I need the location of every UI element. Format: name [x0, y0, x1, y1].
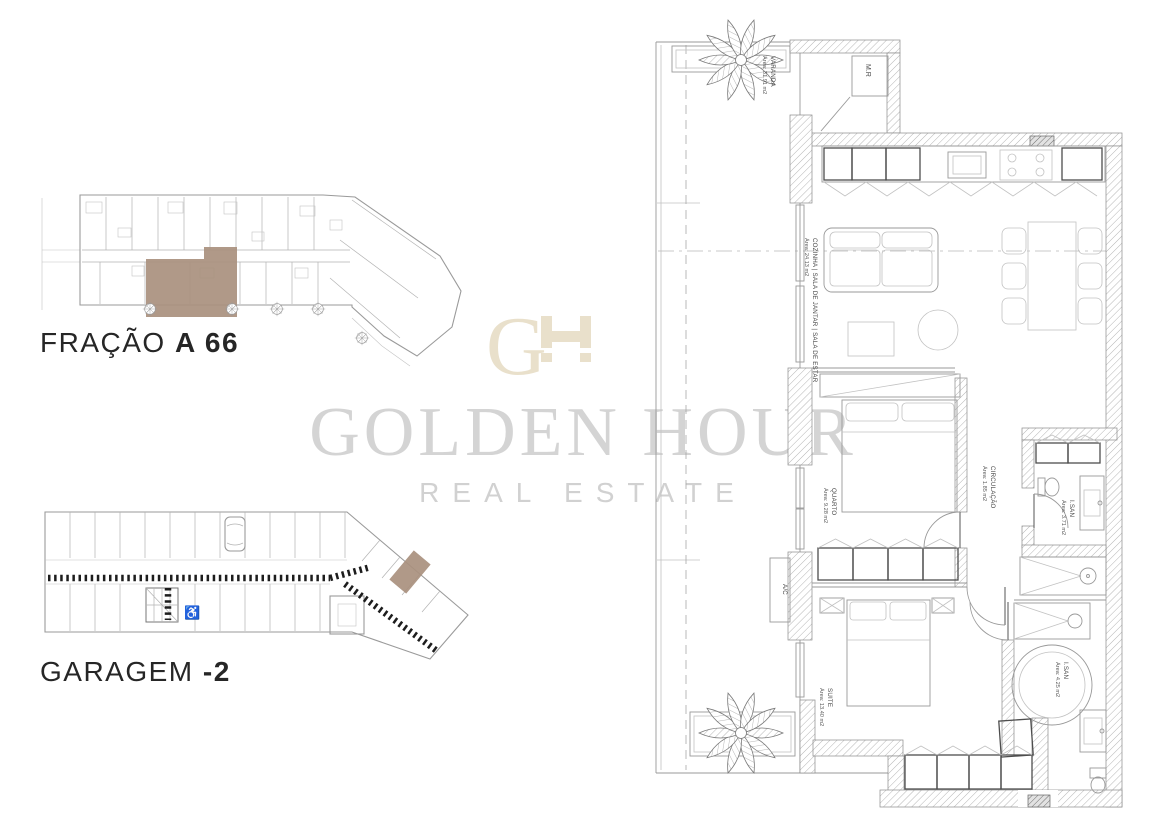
plant-icon: [311, 302, 325, 316]
svg-text:I.SAN: I.SAN: [1062, 662, 1069, 679]
bed-icon: [842, 400, 957, 512]
car-icon: [225, 517, 245, 551]
shower-icon: [1014, 603, 1090, 639]
svg-text:COZINHA | SALA DE JANTAR | SAL: COZINHA | SALA DE JANTAR | SALA DE ESTAR: [811, 238, 818, 383]
svg-text:Área: 24.13 m2: Área: 24.13 m2: [803, 238, 810, 276]
stove-icon: [1000, 150, 1052, 180]
svg-text:Área: 1.85 m2: Área: 1.85 m2: [981, 466, 988, 501]
svg-text:VARANDA: VARANDA: [769, 56, 776, 88]
unit-plan-caption: FRAÇÃO A 66: [40, 327, 239, 359]
parking-highlight: [389, 550, 430, 593]
svg-text:A/C: A/C: [781, 584, 788, 595]
svg-text:QUARTO: QUARTO: [830, 488, 837, 515]
watermark-monogram-h: [541, 316, 591, 362]
room-label-circulacao: CIRCULAÇÃO Área: 1.85 m2: [981, 466, 996, 509]
garage-plan-caption-value: -2: [203, 656, 231, 687]
room-label-quarto: QUARTO Área: 9.28 m2: [822, 488, 837, 523]
room-label-mr: M.R: [864, 64, 871, 77]
garage-plan-caption-prefix: GARAGEM: [40, 656, 194, 687]
rug: [848, 322, 894, 356]
room-label-suite: SUITE Área: 13.40 m2: [818, 688, 833, 726]
unit-plan-caption-value: A 66: [175, 327, 239, 358]
svg-text:Área: 4.25 m2: Área: 4.25 m2: [1054, 662, 1061, 697]
dining-table: [1002, 222, 1102, 330]
drive-lane-marking: [48, 567, 437, 651]
svg-text:Área: 13.40 m2: Área: 13.40 m2: [818, 688, 825, 726]
svg-text:Área: 31.91 m2: Área: 31.91 m2: [761, 56, 768, 94]
unit-highlight: [146, 247, 237, 317]
toilet-icon: [1090, 768, 1106, 793]
svg-text:SUITE: SUITE: [826, 688, 833, 707]
pouf-icon: [918, 310, 958, 350]
garage-plan: ♿: [45, 512, 468, 659]
plant-icon: [699, 692, 783, 775]
room-label-ac: A/C: [781, 584, 788, 595]
plans-canvas: G GOLDEN HOUR REAL ESTATE: [0, 0, 1162, 814]
sofa-icon: [824, 228, 938, 292]
svg-text:I.SAN: I.SAN: [1068, 500, 1075, 517]
room-label-isan-top: I.SAN Área: 3.71 m2: [1060, 500, 1075, 535]
mr-room: M.R: [821, 56, 888, 131]
watermark-subtitle: REAL ESTATE: [419, 477, 747, 508]
accessible-parking-icon: ♿: [184, 605, 200, 620]
bed-icon: [847, 600, 930, 706]
watermark: G GOLDEN HOUR REAL ESTATE: [309, 300, 857, 508]
svg-text:Área: 9.28 m2: Área: 9.28 m2: [822, 488, 829, 523]
plant-icon: [355, 331, 369, 345]
elevator-core: [146, 588, 178, 622]
garage-plan-caption: GARAGEM -2: [40, 656, 231, 688]
unit-plan-caption-prefix: FRAÇÃO: [40, 327, 166, 358]
suite: [820, 587, 1033, 789]
watermark-title: GOLDEN HOUR: [309, 394, 857, 471]
plant-icon: [270, 302, 284, 316]
room-label-living: COZINHA | SALA DE JANTAR | SALA DE ESTAR…: [803, 238, 818, 383]
washbasin-icon: [1080, 476, 1104, 530]
watermark-monogram-g: G: [486, 300, 547, 393]
svg-text:Área: 3.71 m2: Área: 3.71 m2: [1060, 500, 1067, 535]
room-label-isan-bottom: I.SAN Área: 4.25 m2: [1054, 662, 1069, 697]
shower-icon: [1020, 557, 1106, 595]
kitchen: [822, 146, 1105, 196]
wardrobe: [818, 548, 958, 580]
toilet-icon: [1038, 478, 1059, 496]
floorplan-sheet: G GOLDEN HOUR REAL ESTATE: [0, 0, 1162, 814]
svg-text:CIRCULAÇÃO: CIRCULAÇÃO: [989, 466, 996, 509]
